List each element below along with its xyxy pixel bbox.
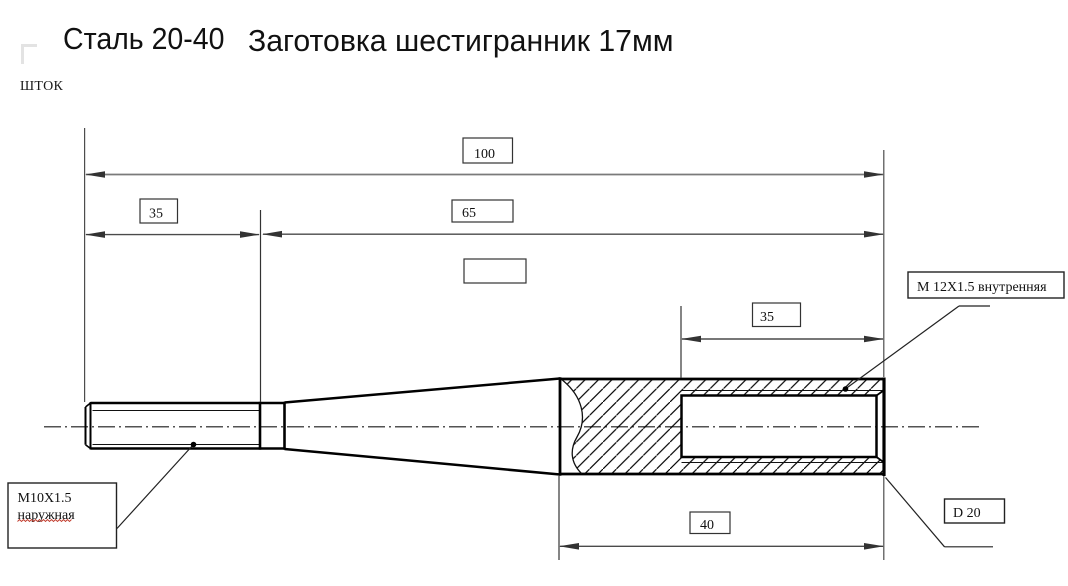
svg-text:35: 35: [149, 207, 163, 222]
svg-text:40: 40: [700, 518, 714, 533]
svg-text:D 20: D 20: [953, 506, 981, 521]
svg-text:M 12X1.5 внутренняя: M 12X1.5 внутренняя: [917, 280, 1047, 295]
svg-text:100: 100: [474, 147, 495, 162]
svg-text:35: 35: [760, 310, 774, 325]
svg-text:M10X1.5: M10X1.5: [18, 491, 72, 506]
svg-text:Сталь 20-40: Сталь 20-40: [63, 21, 225, 56]
svg-text:65: 65: [462, 206, 476, 221]
svg-text:Заготовка шестигранник 17мм: Заготовка шестигранник 17мм: [248, 23, 674, 58]
svg-text:ШТОК: ШТОК: [20, 79, 64, 94]
